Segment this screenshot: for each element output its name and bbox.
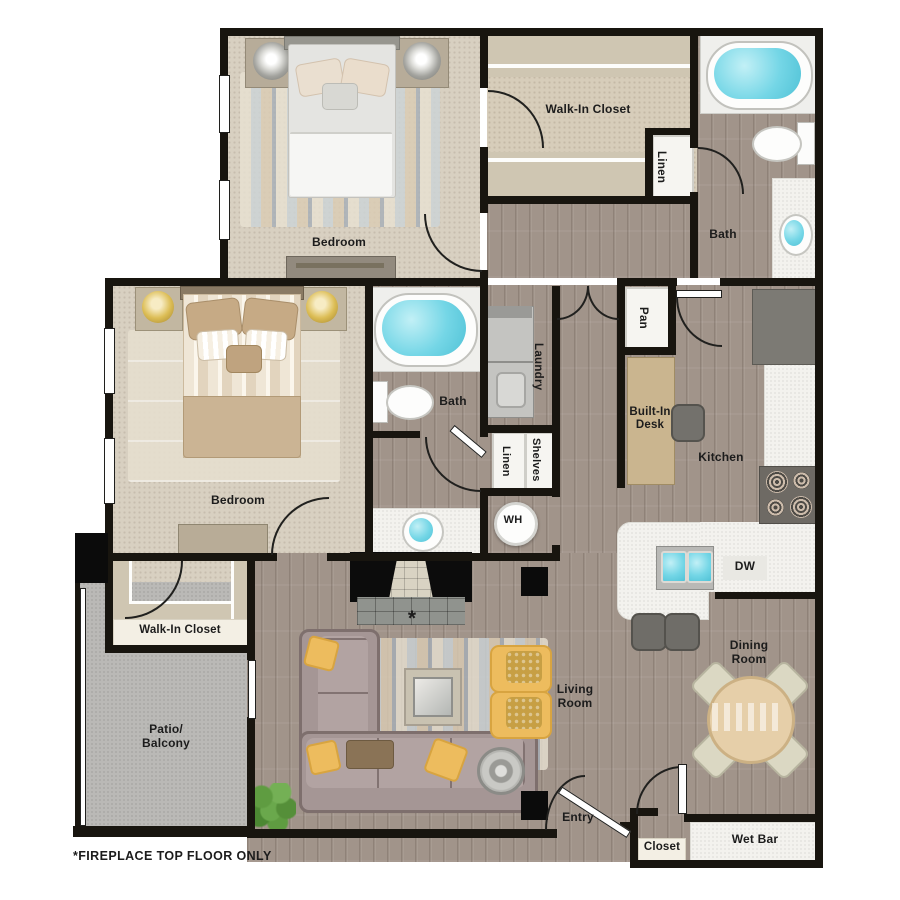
dryer-door xyxy=(496,372,526,408)
closet-rod xyxy=(487,64,697,68)
wall xyxy=(487,425,560,433)
room-label-pantry: Pan xyxy=(637,297,649,339)
wall xyxy=(247,717,255,835)
room-label-patio-line1: Patio/ xyxy=(131,723,201,737)
pillow xyxy=(322,83,358,110)
column-post xyxy=(521,791,548,820)
wall xyxy=(247,553,255,660)
wall xyxy=(365,431,420,438)
side-table xyxy=(477,747,525,795)
wall xyxy=(220,28,823,36)
bed-blanket xyxy=(290,132,392,196)
wall xyxy=(487,196,692,204)
floor-plan: Bedroom Walk-In Closet Linen Bath Bedroo… xyxy=(0,0,900,900)
wall xyxy=(645,128,692,135)
room-label-entry: Entry xyxy=(553,811,603,825)
footnote: *FIREPLACE TOP FLOOR ONLY xyxy=(73,849,272,863)
wall xyxy=(365,286,373,553)
dresser xyxy=(178,524,268,554)
window xyxy=(104,438,115,504)
room-label-patio-line2: Balcony xyxy=(131,737,201,751)
wall xyxy=(480,488,488,560)
room-label-bedroom-master: Bedroom xyxy=(188,494,288,508)
lamp-gold xyxy=(142,291,174,323)
room-label-closet: Closet xyxy=(632,841,692,854)
burner xyxy=(790,496,812,518)
room-label-laundry: Laundry xyxy=(532,336,544,398)
wall xyxy=(617,347,676,355)
closet-door-leaf xyxy=(678,764,687,814)
label-dishwasher: DW xyxy=(725,560,765,574)
coffee-table-top xyxy=(413,677,453,717)
window xyxy=(219,180,230,240)
bar-stool xyxy=(631,613,667,651)
wall xyxy=(105,645,255,653)
pillow xyxy=(226,345,262,373)
wall xyxy=(480,286,488,437)
wall xyxy=(720,278,823,286)
wall xyxy=(690,36,698,148)
room-label-kitchen: Kitchen xyxy=(681,451,761,465)
throw-pillow xyxy=(305,739,342,776)
wall xyxy=(668,285,676,347)
wall xyxy=(630,808,638,868)
room-label-linen-top: Linen xyxy=(655,139,667,195)
wall xyxy=(684,814,823,822)
wall xyxy=(487,488,560,496)
burner xyxy=(766,471,788,493)
patio-sliding-door xyxy=(248,660,256,719)
washer-panel xyxy=(486,306,532,318)
room-label-dining-room: Dining Room xyxy=(719,639,779,667)
room-label-shelves: Shelves xyxy=(530,431,542,489)
wall xyxy=(630,860,823,868)
room-label-bath-master: Bath xyxy=(423,395,483,409)
wall xyxy=(247,829,557,838)
dresser-handle xyxy=(296,263,384,268)
fireplace-asterisk: * xyxy=(400,607,424,631)
bed-blanket xyxy=(183,396,301,458)
sink-water xyxy=(784,220,804,246)
room-label-linen-mid: Linen xyxy=(500,434,512,488)
wall xyxy=(73,826,255,837)
room-label-living-room: Living Room xyxy=(546,683,604,711)
patio-rail xyxy=(80,588,86,826)
bathtub-water xyxy=(382,300,466,356)
wall xyxy=(220,28,228,285)
wall xyxy=(645,128,653,203)
accent-chair-seat xyxy=(506,697,542,729)
lamp-gold xyxy=(306,291,338,323)
sink-water xyxy=(409,518,433,542)
wall xyxy=(105,278,487,286)
closet-shelf xyxy=(487,35,697,77)
table-runner xyxy=(712,703,784,731)
kitchen-counter xyxy=(764,362,818,470)
sink-basin xyxy=(687,551,713,583)
room-label-wet-bar: Wet Bar xyxy=(705,833,805,847)
pantry-door-leaf xyxy=(676,290,722,298)
burner xyxy=(767,499,784,516)
wall xyxy=(815,28,823,868)
label-water-heater: WH xyxy=(494,514,532,527)
wall xyxy=(715,592,815,599)
window xyxy=(219,75,230,133)
burner xyxy=(793,472,810,489)
patio-corner-post xyxy=(75,533,108,583)
wall xyxy=(480,270,488,286)
throw-blanket xyxy=(346,740,394,769)
column-post xyxy=(521,567,548,596)
room-label-bath-top: Bath xyxy=(693,228,753,242)
room-label-walk-in-closet-top: Walk-In Closet xyxy=(538,103,638,117)
closet-rod xyxy=(487,158,645,162)
accent-chair-seat xyxy=(506,651,542,683)
label-built-in-desk: Built-In Desk xyxy=(619,406,681,432)
bathtub-water xyxy=(714,48,801,99)
lamp xyxy=(403,42,441,80)
toilet xyxy=(752,126,802,162)
room-label-walk-in-closet-bottom: Walk-In Closet xyxy=(115,624,245,637)
wall xyxy=(327,553,560,561)
bar-stool xyxy=(664,613,700,651)
wall xyxy=(480,36,488,88)
plant xyxy=(250,783,296,829)
room-label-bedroom-top: Bedroom xyxy=(289,236,389,250)
window xyxy=(104,328,115,394)
refrigerator xyxy=(752,289,818,365)
sink-basin xyxy=(661,551,687,583)
